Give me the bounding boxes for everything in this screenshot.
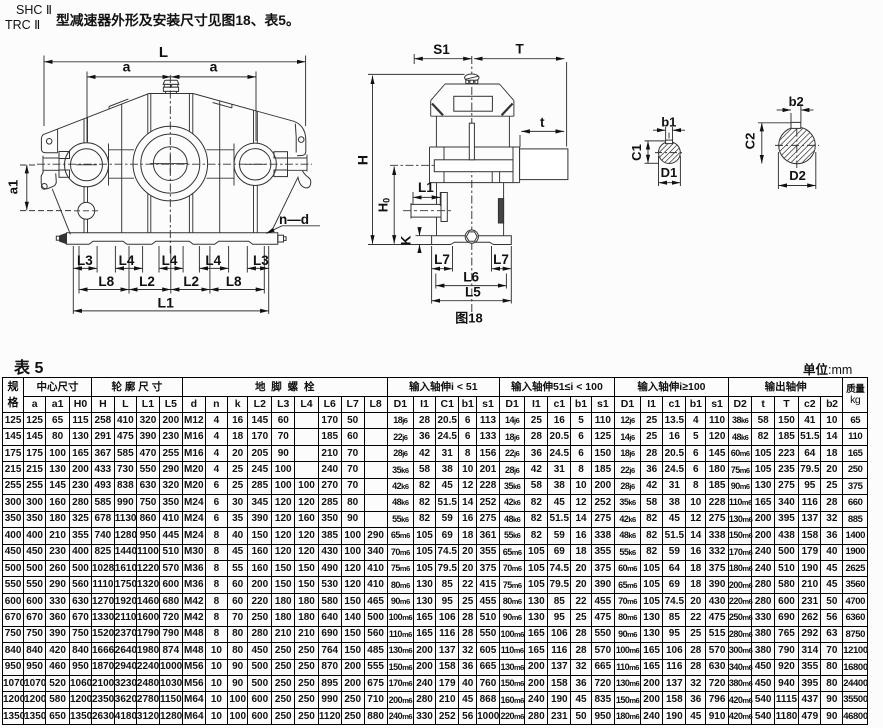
svg-text:K: K — [399, 235, 414, 245]
svg-text:L4: L4 — [205, 253, 221, 268]
svg-text:L4: L4 — [162, 253, 178, 268]
svg-text:L3: L3 — [77, 253, 93, 268]
svg-text:L1: L1 — [158, 295, 175, 311]
svg-text:H: H — [355, 155, 371, 165]
svg-text:L: L — [159, 44, 168, 61]
svg-text:L3: L3 — [253, 253, 269, 268]
svg-text:L7: L7 — [493, 252, 509, 267]
svg-text:n—d: n—d — [279, 212, 309, 227]
svg-text:D2: D2 — [789, 168, 806, 183]
svg-text:L2: L2 — [183, 274, 199, 289]
svg-text:L1: L1 — [418, 180, 434, 195]
svg-text:L6: L6 — [463, 270, 479, 285]
svg-text:t: t — [540, 115, 545, 130]
svg-text:L4: L4 — [119, 253, 135, 268]
svg-text:C1: C1 — [629, 144, 644, 161]
svg-text:T: T — [515, 42, 524, 57]
svg-text:L2: L2 — [139, 274, 155, 289]
svg-text:H0: H0 — [376, 198, 392, 212]
svg-text:a: a — [210, 59, 218, 75]
svg-text:L7: L7 — [434, 252, 450, 267]
svg-text:b1: b1 — [661, 115, 676, 130]
svg-text:D1: D1 — [661, 165, 678, 180]
svg-text:a: a — [123, 59, 131, 75]
svg-text:b2: b2 — [789, 94, 804, 109]
svg-text:C2: C2 — [743, 133, 758, 150]
svg-text:图18: 图18 — [455, 311, 482, 326]
svg-text:L8: L8 — [98, 274, 114, 289]
svg-text:L8: L8 — [226, 274, 242, 289]
svg-text:S1: S1 — [433, 42, 450, 57]
svg-text:a1: a1 — [6, 180, 21, 194]
svg-text:L5: L5 — [465, 285, 481, 300]
